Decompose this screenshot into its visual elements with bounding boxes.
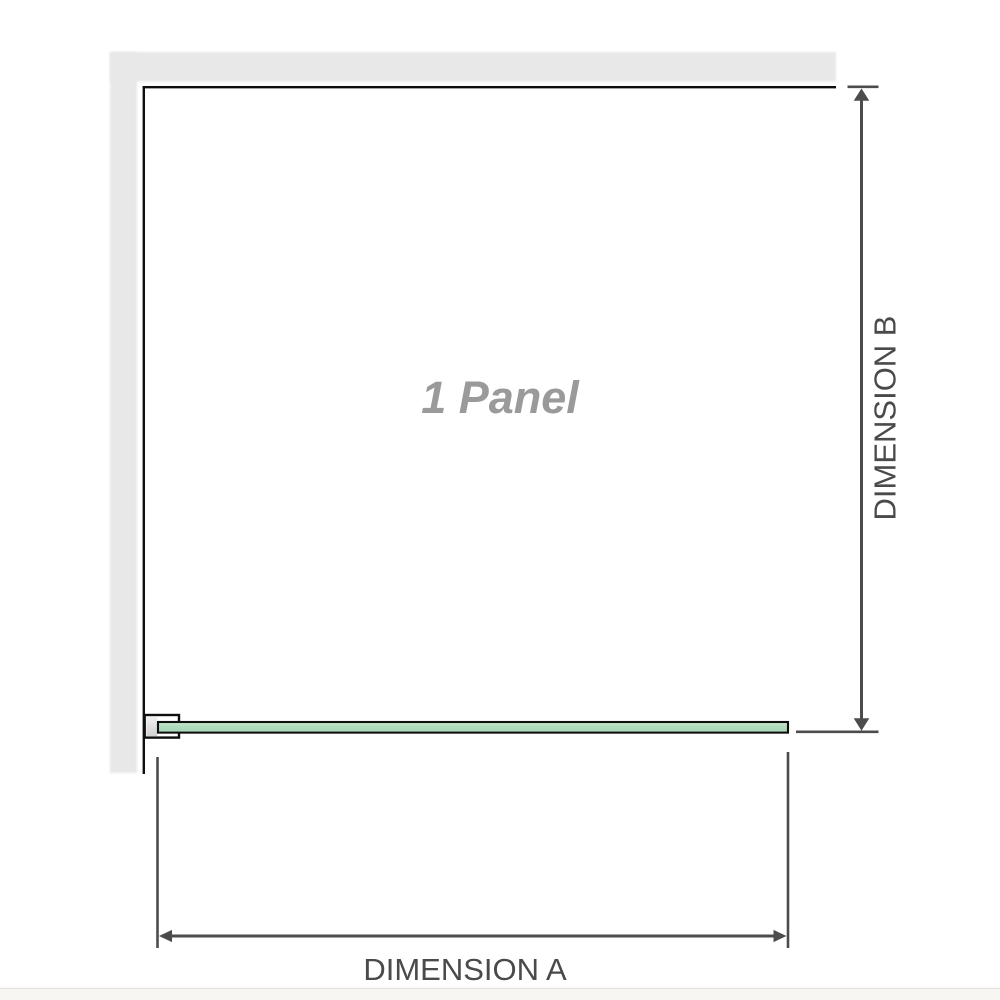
svg-text:DIMENSION A: DIMENSION A: [363, 952, 567, 987]
svg-text:1 Panel: 1 Panel: [421, 372, 580, 423]
svg-text:DIMENSION B: DIMENSION B: [868, 316, 903, 521]
